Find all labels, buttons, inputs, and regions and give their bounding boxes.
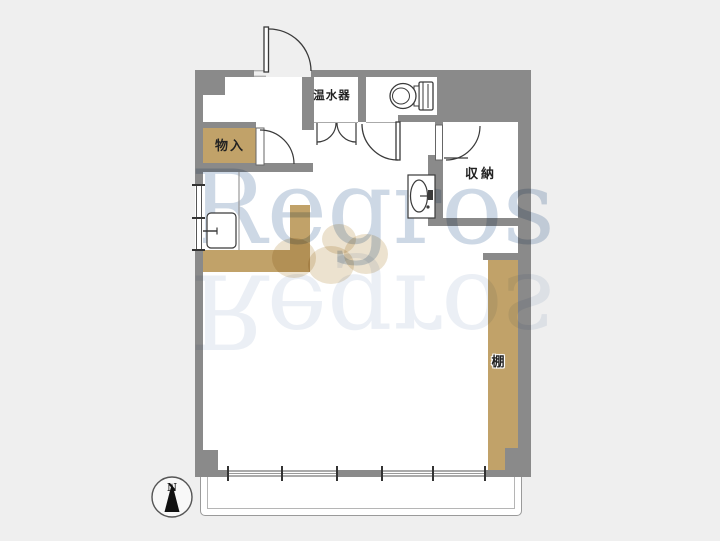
label-storage-closet: 物入 [204,139,256,153]
balcony-window-left [228,466,337,481]
balcony-window-right [382,466,485,481]
floorplan-canvas: Regros Regros [0,0,720,541]
toilet-fixture [390,82,433,110]
compass: N [152,477,192,517]
entrance-door [254,27,311,76]
water-heater-double-doors [314,123,358,146]
label-shelf: 棚 [485,355,511,369]
closet-door [436,125,481,160]
kitchen-sink-fixture [203,213,236,248]
storage-door [256,128,294,165]
toilet-door [362,122,400,160]
linework-layer: N [0,0,720,541]
compass-north-label: N [167,481,177,494]
kitchen-left-window [192,185,205,250]
label-closet: 収納 [453,167,509,181]
label-water-heater: 温水器 [304,90,360,103]
washbasin-fixture [408,175,435,218]
